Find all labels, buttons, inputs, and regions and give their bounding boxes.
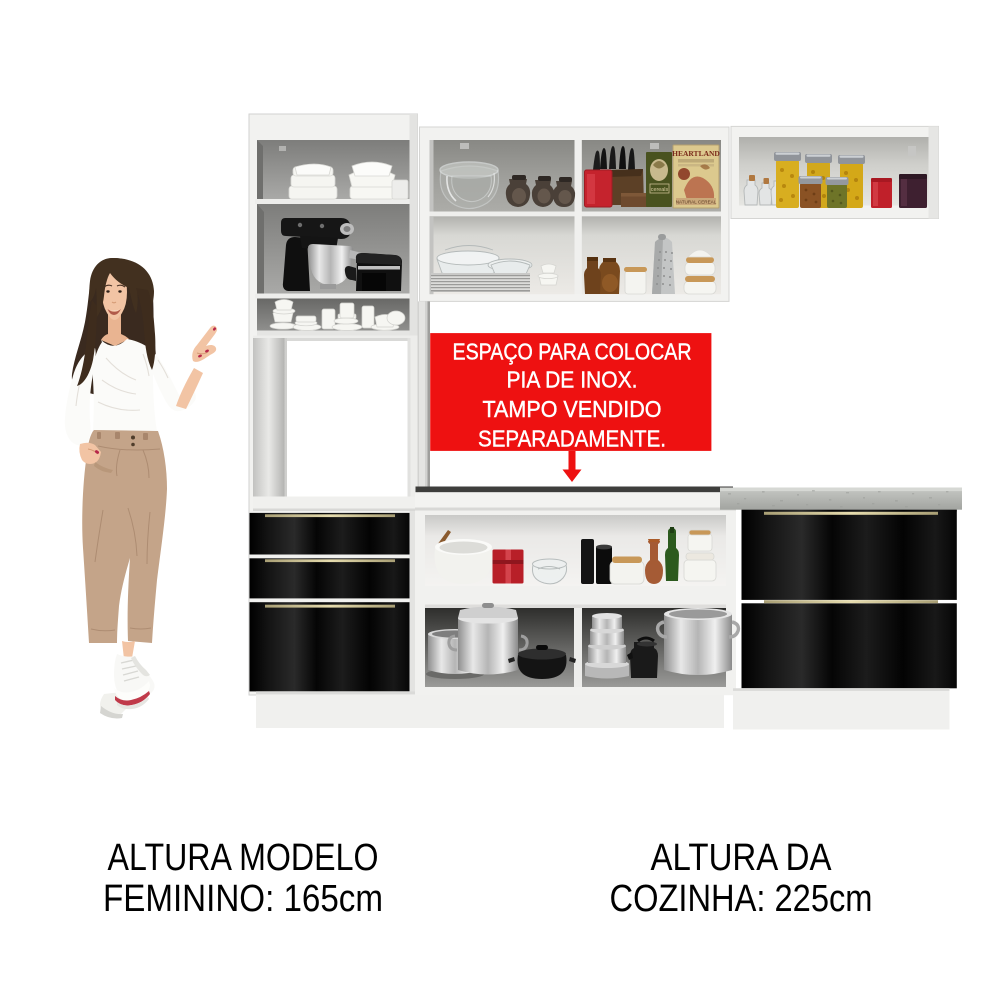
svg-text:FEMININO: 165cm: FEMININO: 165cm: [103, 878, 383, 920]
svg-text:ALTURA MODELO: ALTURA MODELO: [108, 837, 379, 879]
svg-text:ALTURA DA: ALTURA DA: [651, 837, 833, 879]
svg-text:COZINHA: 225cm: COZINHA: 225cm: [610, 878, 873, 920]
svg-text:ESPAÇO PARA COLOCAR: ESPAÇO PARA COLOCAR: [453, 339, 692, 365]
svg-text:HEARTLAND: HEARTLAND: [672, 149, 720, 158]
svg-text:TAMPO VENDIDO: TAMPO VENDIDO: [483, 396, 662, 422]
svg-text:SEPARADAMENTE.: SEPARADAMENTE.: [478, 425, 666, 451]
svg-text:PIA DE INOX.: PIA DE INOX.: [507, 366, 638, 392]
svg-text:NATURAL CEREAL: NATURAL CEREAL: [676, 200, 717, 205]
svg-text:cereals: cereals: [651, 187, 669, 193]
